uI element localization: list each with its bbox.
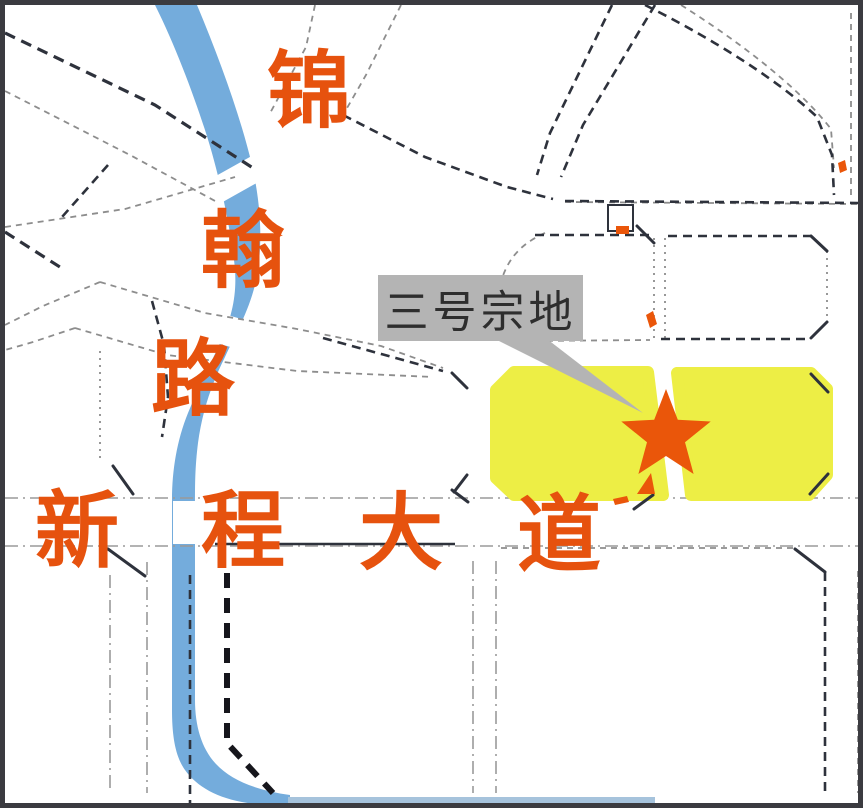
river-bottom-strip [288, 797, 655, 803]
boundary-dashed-line [227, 573, 273, 793]
callout-box: 三号宗地 [378, 275, 583, 341]
callout-label: 三号宗地 [385, 276, 577, 340]
map-canvas[interactable]: 三号宗地 锦 翰 路 新 程 大 道 [0, 0, 863, 808]
map-drawing [5, 5, 858, 803]
road-over-river-2 [85, 290, 243, 335]
parcel-right [677, 373, 827, 495]
river [155, 5, 290, 803]
road-over-river-3 [173, 501, 229, 544]
